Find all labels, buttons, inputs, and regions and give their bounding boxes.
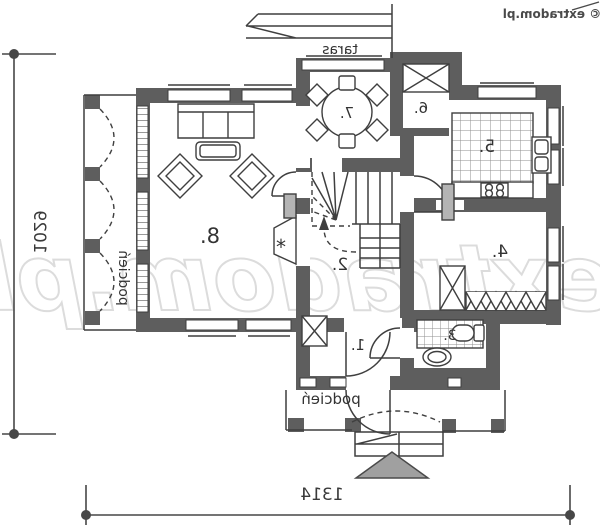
label-taras: taras: [322, 42, 358, 58]
room-label-4: 4.: [492, 242, 508, 262]
floor-plan: extradom.pl: [0, 0, 600, 529]
room-label-8: 8.: [200, 224, 220, 248]
stove: [481, 183, 508, 197]
room-label-2: 2.: [332, 255, 348, 275]
dimension-left: 1029: [29, 210, 49, 253]
room-label-1: 1.: [351, 336, 365, 354]
fireplace-asterisk: *: [276, 235, 286, 259]
toilet: [474, 325, 484, 341]
wardrobe: [466, 292, 546, 310]
watermark-copyright: © extradom.pl: [503, 7, 600, 21]
floor-plan-svg: extradom.pl: [0, 0, 600, 529]
room-label-3: 3.: [443, 328, 456, 344]
chair: [339, 76, 355, 90]
room-label-7: 7.: [340, 104, 354, 122]
sofa: [178, 104, 254, 138]
stairs-arrow: [319, 216, 329, 230]
chair: [339, 134, 355, 148]
door-leaf: [442, 184, 454, 220]
label-podcien-left: podcień: [115, 250, 131, 305]
label-podcien-entry: podcień: [301, 390, 360, 408]
dimension-bottom: 1314: [300, 485, 343, 505]
room-label-6: 6.: [414, 99, 428, 117]
room-label-5: 5.: [479, 137, 495, 157]
tv-cabinet: [284, 194, 296, 218]
